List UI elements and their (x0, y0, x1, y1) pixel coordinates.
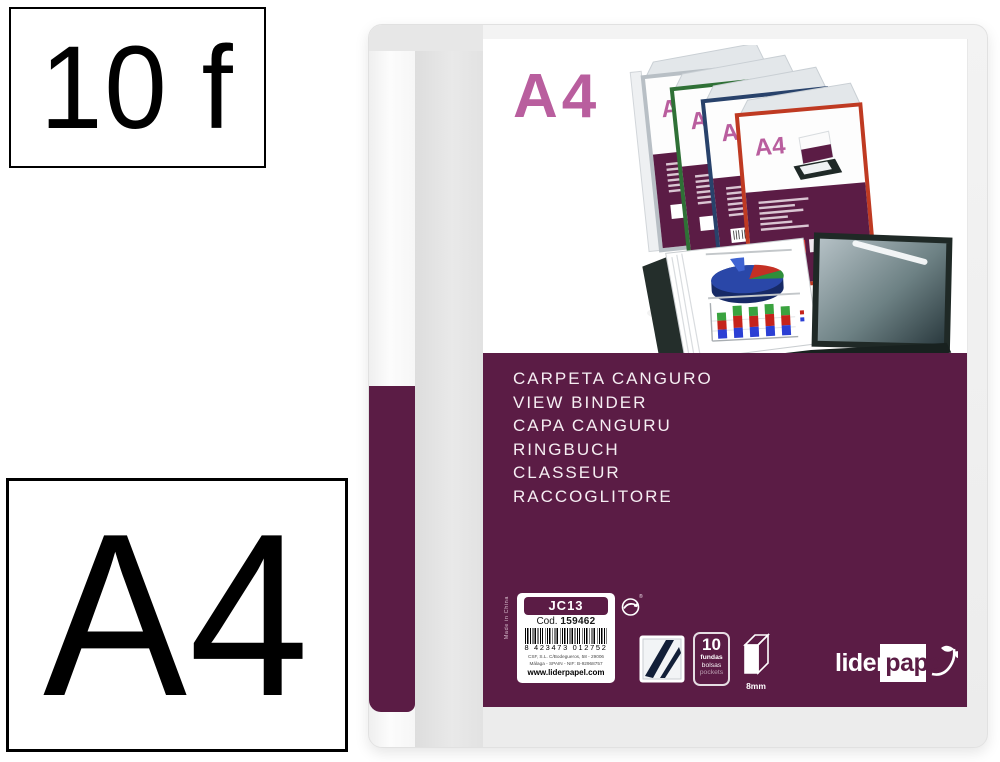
leaf-glyph (928, 641, 958, 679)
made-in-text: Made in China (504, 596, 510, 639)
folder-hinge (415, 25, 483, 747)
cover-format-label: A4 (513, 61, 600, 132)
product-name-en: VIEW BINDER (513, 391, 713, 415)
barcode (525, 628, 607, 644)
clear-pocket-icon (638, 634, 686, 684)
product-name-pt: CAPA CANGURU (513, 414, 713, 438)
spine-book-glyph (739, 633, 773, 677)
clear-pocket (809, 229, 955, 353)
registered-mark: ® (639, 594, 643, 600)
green-dot-icon: ® (621, 597, 647, 619)
green-dot-glyph (621, 597, 641, 617)
cover-insert: A4 (483, 39, 968, 707)
logo-text-lider: lider (835, 649, 885, 677)
product-name-de: RINGBUCH (513, 438, 713, 462)
website-text: www.liderpapel.com (517, 668, 615, 677)
format-badge: A4 (6, 478, 348, 752)
product-name-es: CARPETA CANGURO (513, 367, 713, 391)
pocket-count: 10 (695, 636, 728, 654)
clear-pocket-glyph (638, 634, 686, 684)
folder-spine-band (369, 386, 415, 712)
pocket-label-es: fundas (695, 654, 728, 662)
barcode-digits: 8 423473 012752 (517, 644, 615, 652)
product-name-it: RACCOGLITORE (513, 485, 713, 509)
product-name-fr: CLASSEUR (513, 461, 713, 485)
pocket-count-icon: 10 fundas bolsas pockets (693, 632, 730, 686)
spine-width-text: 8mm (736, 681, 776, 691)
sheet-count-badge: 10 f (9, 7, 266, 168)
cover-band: CARPETA CANGURO VIEW BINDER CAPA CANGURU… (483, 353, 967, 707)
code-number: 159462 (560, 616, 595, 627)
view-binder-folder: A4 (368, 24, 988, 748)
spine-width-icon: 8mm (736, 633, 776, 689)
cover-insert-top: A4 (483, 39, 967, 353)
pocket-label-pt: bolsas (695, 662, 728, 670)
product-name-list: CARPETA CANGURO VIEW BINDER CAPA CANGURU… (513, 367, 713, 508)
product-label: JC13 Cod. 159462 8 423473 012752 CSF, S.… (517, 593, 615, 683)
sheet-count-text: 10 f (40, 20, 235, 156)
address-line-1: CSF, S.L. C/Bodegueros, 58 - 29006 (517, 654, 615, 660)
product-photo-stage: 10 f A4 A4 (0, 0, 1000, 762)
leaf-icon (928, 641, 958, 684)
pocket-label-en: pockets (695, 669, 728, 677)
model-code: JC13 (524, 597, 608, 615)
svg-text:A4: A4 (754, 132, 788, 162)
logo-text: liderpape (835, 649, 942, 678)
binders-photo: A4 A4 (627, 45, 968, 353)
address-line-2: Málaga - SPAIN - NIF: B-92968757 (517, 661, 615, 667)
liderpapel-logo: liderpape (835, 640, 957, 686)
folder-top-edge (369, 25, 483, 51)
code-prefix: Cod. (536, 616, 557, 627)
format-text: A4 (43, 482, 311, 749)
catalog-code: Cod. 159462 (517, 616, 615, 627)
